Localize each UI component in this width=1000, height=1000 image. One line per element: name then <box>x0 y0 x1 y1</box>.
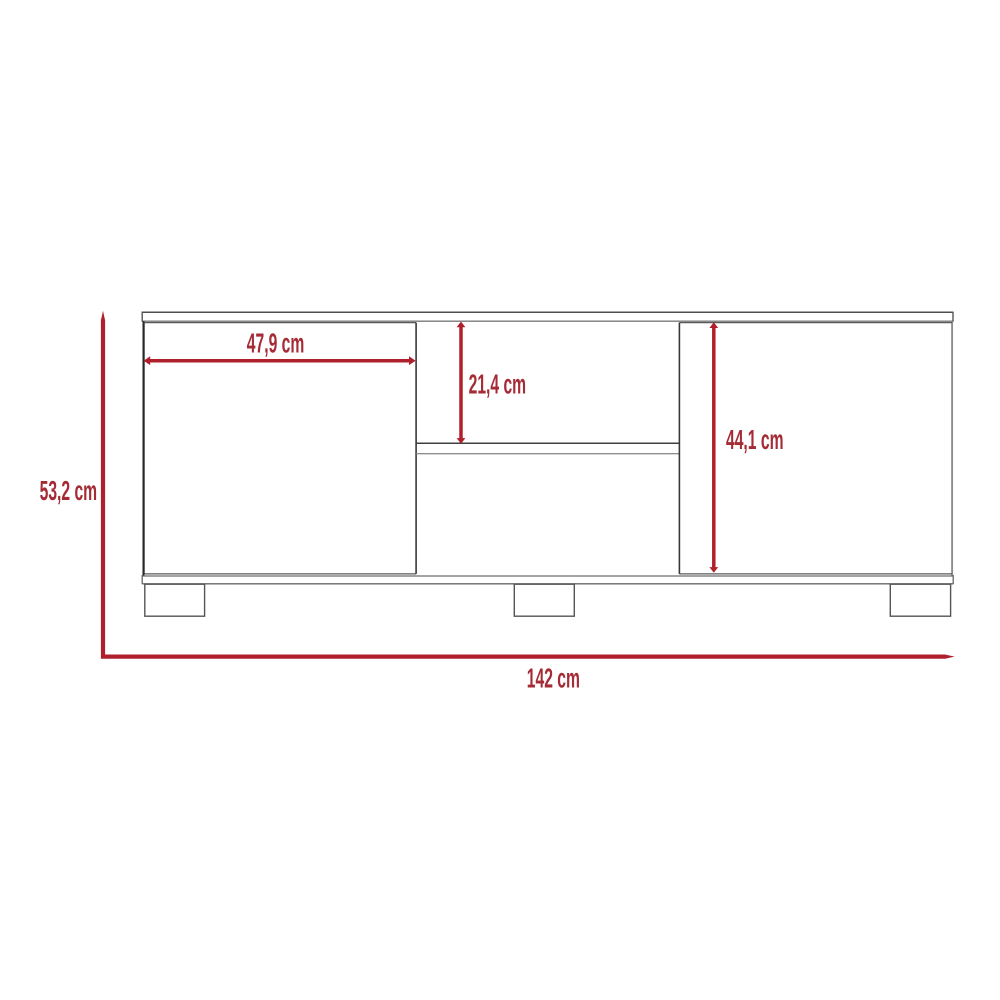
svg-text:47,9 cm: 47,9 cm <box>247 328 305 359</box>
svg-text:21,4 cm: 21,4 cm <box>469 369 527 400</box>
svg-text:44,1 cm: 44,1 cm <box>726 424 784 455</box>
svg-text:142 cm: 142 cm <box>527 663 580 694</box>
svg-text:53,2 cm: 53,2 cm <box>40 475 98 506</box>
